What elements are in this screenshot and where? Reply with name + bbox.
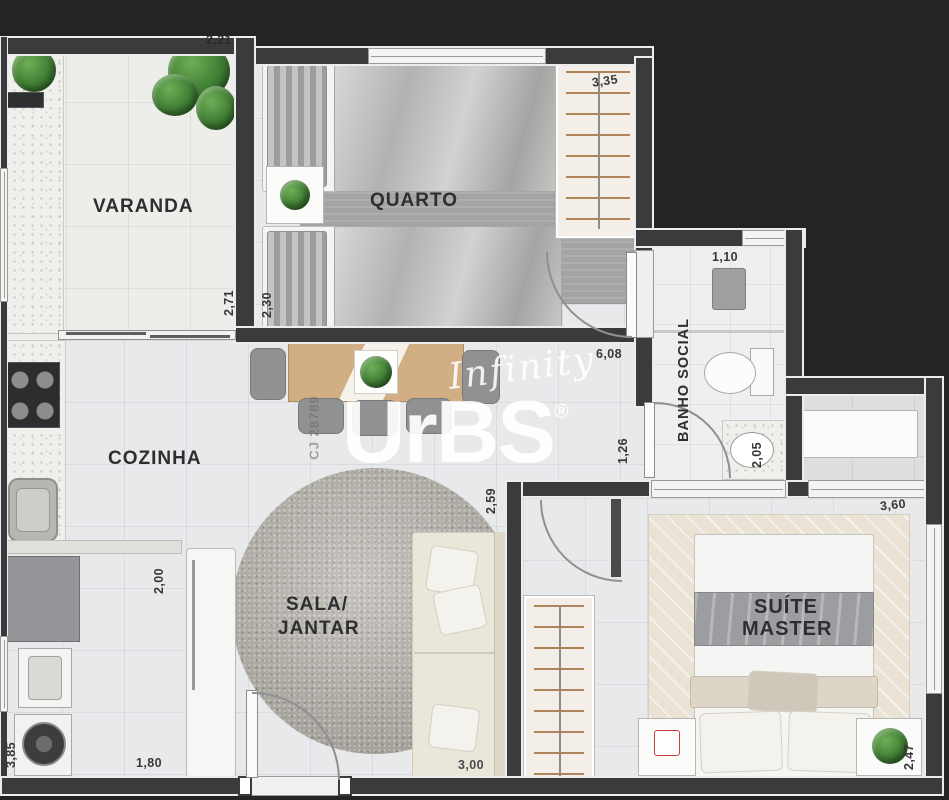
quarto-label: QUARTO — [370, 190, 458, 212]
wall-suite-top-pier — [786, 480, 810, 498]
dim-hall-width: 1,26 — [616, 438, 630, 464]
varanda-sliding-door-panel2 — [150, 335, 230, 338]
suite-wardrobe — [524, 596, 594, 786]
large-plant-varanda-leaf — [152, 74, 198, 116]
varanda-grill — [2, 92, 44, 108]
hanger-rail-icon — [534, 605, 584, 777]
single-bed-1-blanket — [334, 60, 562, 192]
wall-bottom — [0, 776, 944, 796]
quarto-nightstand-plant — [280, 180, 310, 210]
wall-corridor-left — [505, 480, 523, 778]
floor-plan: VARANDA QUARTO BANHO SOCIAL COZINHA SALA… — [0, 0, 949, 800]
banho-social-label: BANHO SOCIAL — [676, 290, 692, 470]
kitchen-sink-basin — [16, 488, 50, 532]
nightstand-lamp-icon — [654, 730, 680, 756]
dim-varanda-width: 2,21 — [206, 33, 232, 47]
dim-banho-width: 1,10 — [712, 250, 738, 264]
cozinha-label: COZINHA — [108, 448, 202, 470]
quarto-window — [368, 48, 546, 64]
alcove-bench — [800, 410, 918, 458]
suite-right-window — [926, 524, 942, 694]
suite-pillow-left — [699, 711, 783, 774]
varanda-left-window — [0, 168, 8, 302]
entry-jamb-right — [338, 776, 352, 796]
wall-varanda-right — [234, 36, 256, 344]
stove — [2, 362, 60, 428]
watermark-registered-icon: ® — [554, 401, 567, 423]
service-counter — [0, 540, 182, 554]
ac-condenser-fan — [22, 722, 66, 766]
toilet-bowl — [704, 352, 756, 394]
sala-label-line1: SALA/ — [286, 594, 348, 616]
shower-head — [712, 268, 746, 310]
dim-servico-width: 1,80 — [136, 756, 162, 770]
entry-jamb-left — [238, 776, 252, 796]
refrigerator-handle — [192, 560, 195, 690]
wall-banho-right — [784, 228, 804, 498]
quarto-door-threshold — [634, 250, 654, 338]
dim-cozinha-depth: 2,00 — [152, 568, 166, 594]
suite-top-window — [651, 480, 786, 498]
watermark-brand: UrBS® — [342, 388, 567, 476]
service-cabinet — [0, 556, 80, 642]
varanda-sliding-door-panel — [66, 332, 146, 335]
varanda-label: VARANDA — [93, 196, 194, 218]
single-bed-2-pillow — [267, 231, 327, 335]
dining-chair-4 — [250, 348, 286, 400]
watermark-brand-text: UrBS — [342, 382, 554, 481]
dim-hall-length: 6,08 — [596, 347, 622, 361]
large-plant-varanda-leaf2 — [196, 86, 236, 130]
washing-machine-lid — [28, 656, 62, 700]
banho-door-leaf — [644, 402, 655, 478]
dim-banho-depth: 2,05 — [750, 442, 764, 468]
service-left-window — [0, 636, 8, 712]
sofa-seat-line — [414, 652, 494, 654]
shower-glass — [652, 330, 788, 333]
sala-label-line2: JANTAR — [278, 618, 360, 640]
dim-varanda-depth: 2,71 — [222, 290, 236, 316]
suite-label-line2: MASTER — [742, 618, 832, 641]
dim-servico-depth: 3,85 — [4, 742, 18, 768]
sofa-pillow-3 — [427, 703, 480, 753]
alcove-sill — [808, 480, 928, 498]
hanger-rail-icon — [566, 71, 630, 229]
wall-suite-top-left — [505, 480, 651, 498]
dim-suite-depth: 2,47 — [902, 744, 916, 770]
single-bed-2-blanket — [334, 226, 562, 340]
dim-sala-length: 3,00 — [458, 758, 484, 772]
watermark-code: CJ 28789 — [307, 395, 322, 459]
wall-alcove-top — [784, 376, 944, 396]
suite-deco-pillow — [747, 670, 819, 714]
dim-suite-width: 3,60 — [879, 497, 906, 514]
suite-label-line1: SUÍTE — [754, 596, 818, 619]
dim-sala-width: 2,59 — [484, 488, 498, 514]
dim-quarto-depth: 2,30 — [260, 292, 274, 318]
